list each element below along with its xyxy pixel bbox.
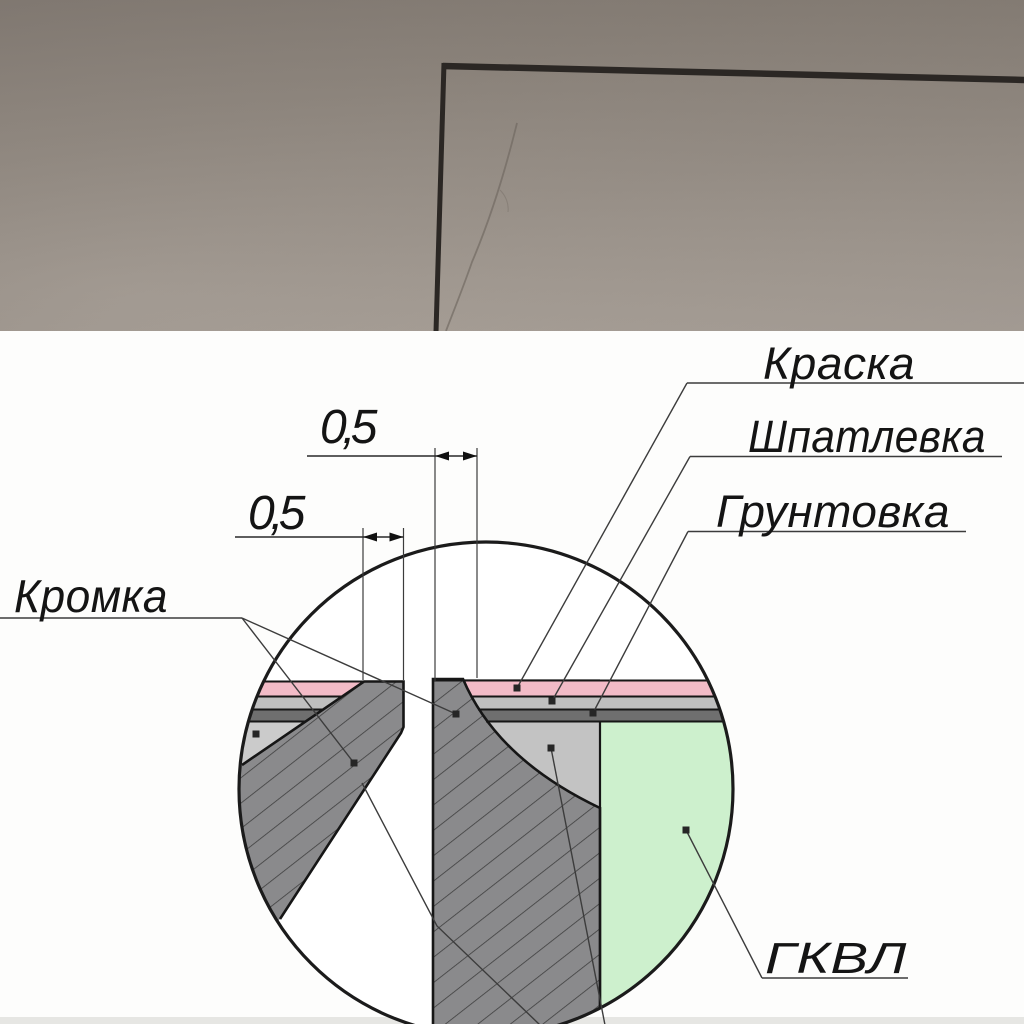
dim-arrow-right [463, 452, 477, 461]
technical-drawing: 0,5 0,5 Кромка Краска Шпатлевка Грунтовк… [0, 331, 1024, 1024]
dot-joint-filler [548, 745, 555, 752]
dot-left-filler [253, 731, 260, 738]
dot-gkvl [683, 827, 690, 834]
label-kromka: Кромка [14, 570, 168, 622]
paint-layer-left [215, 682, 364, 697]
dim-arrow-left [363, 533, 377, 542]
plaster-crack-branch [500, 190, 508, 212]
dot-paint-layer [514, 685, 521, 692]
label-gruntovka: Грунтовка [716, 486, 950, 537]
plaster-crack-line [446, 123, 517, 331]
gkvl-board-region [600, 722, 752, 1024]
putty-layer-left [215, 697, 342, 710]
dimension-value-left: 0,5 [248, 487, 306, 540]
photo-overlay [0, 0, 1024, 331]
dot-primer-layer [590, 710, 597, 717]
shadow-gap-horizontal-line [443, 66, 1024, 80]
putty-layer-right [433, 698, 747, 710]
dot-left-board [351, 760, 358, 767]
paint-layer-right [433, 682, 747, 697]
detail-drawing-svg: 0,5 0,5 Кромка Краска Шпатлевка Грунтовк… [0, 331, 1024, 1024]
screenshot-root: 0,5 0,5 Кромка Краска Шпатлевка Грунтовк… [0, 0, 1024, 1024]
dim-arrow-left [435, 452, 449, 461]
ceiling-corner-photo [0, 0, 1024, 331]
label-gkvl: ГКВЛ [765, 934, 907, 983]
label-shpatlevka: Шпатлевка [748, 411, 986, 462]
dim-arrow-right [390, 533, 404, 542]
dot-right-board-edge [453, 711, 460, 718]
label-kraska: Краска [763, 338, 915, 389]
dot-putty-layer [549, 698, 556, 705]
shadow-gap-vertical-line [436, 63, 444, 331]
dimension-value-top: 0,5 [320, 401, 378, 454]
